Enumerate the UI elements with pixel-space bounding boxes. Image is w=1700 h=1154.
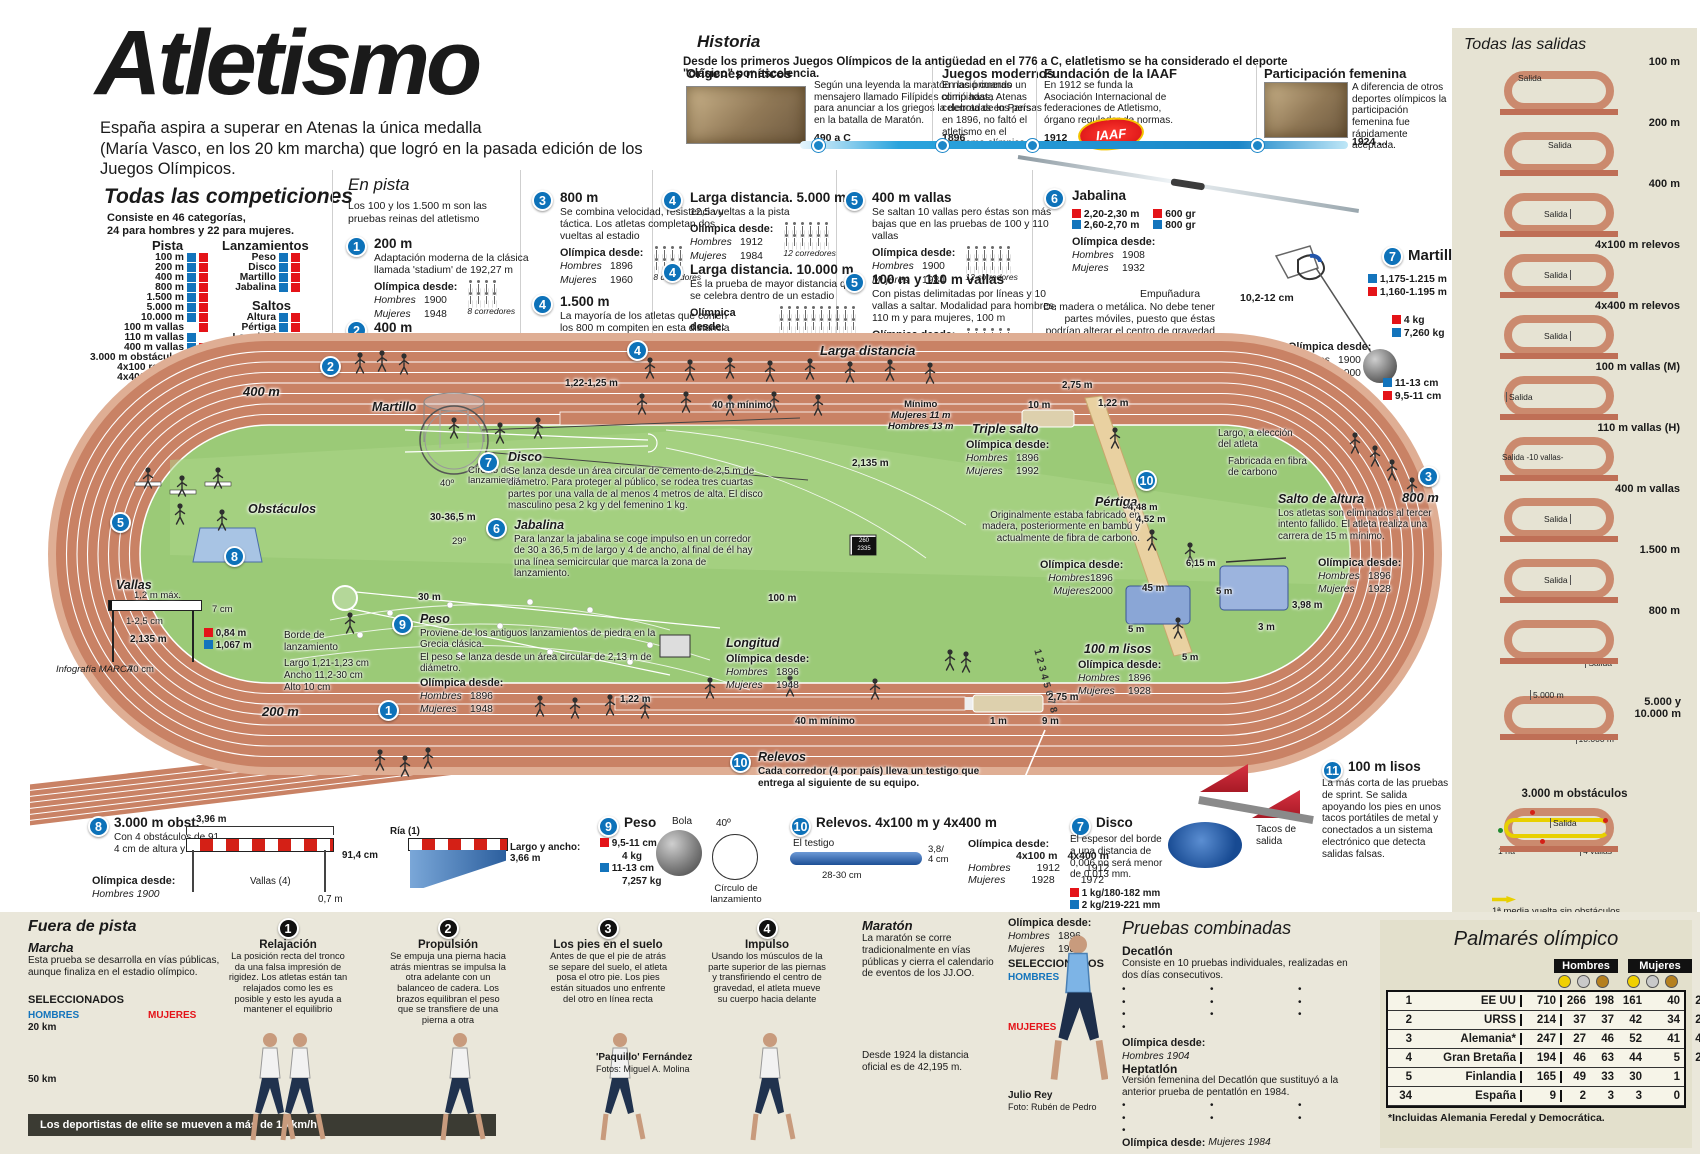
label-1067m: 1,067 m bbox=[204, 640, 252, 651]
timeline-dot bbox=[812, 139, 825, 152]
label-40deg-peso: 40º bbox=[716, 818, 731, 829]
label-5m-b: 5 m bbox=[1128, 624, 1144, 635]
mini-track-icon: Salida bbox=[1504, 376, 1614, 416]
marcha-20km: 20 km bbox=[28, 1022, 56, 1033]
heptatlon-title: Heptatlón bbox=[1122, 1062, 1177, 1076]
salida-text: Salida bbox=[1544, 209, 1571, 219]
event-badge: 5 bbox=[844, 272, 865, 293]
heptatlon-col-3 bbox=[1298, 1100, 1302, 1125]
mini-track-icon: Salida 1 ría 4 vallas bbox=[1504, 808, 1614, 848]
rank-cell: 4 bbox=[1388, 1052, 1416, 1064]
runners-icon: 8 corredores bbox=[467, 280, 515, 321]
label-100m-dist: 100 m bbox=[768, 593, 796, 604]
palmares-row: 3 Alemania* 247 274652 414140 bbox=[1388, 1030, 1684, 1049]
label-30m: 30 m bbox=[418, 592, 441, 603]
water-jump-icon bbox=[410, 850, 506, 888]
competition-item: Disco bbox=[196, 262, 300, 272]
label-1-25cm: 1-2,5 cm bbox=[126, 616, 163, 627]
label-el-testigo: El testigo bbox=[793, 838, 834, 849]
event-badge: 4 bbox=[662, 190, 683, 211]
olimpica-block: Olímpica desde: Hombres1896 Mujeres1928 bbox=[1078, 658, 1161, 699]
badge-4: 4 bbox=[627, 340, 648, 361]
palmares-row: 5 Finlandia 165 493330 120 bbox=[1388, 1068, 1684, 1087]
disco-item-title: Disco bbox=[1096, 815, 1133, 830]
event-desc: 12,5 vueltas a la pista bbox=[690, 207, 852, 219]
label-jabalina: Jabalina bbox=[514, 518, 564, 532]
total-cell: 214 bbox=[1520, 1014, 1562, 1026]
cien-item-text: La más corta de las pruebas de sprint. S… bbox=[1322, 778, 1450, 861]
historia-timeline: Orígenes míticos Según una leyenda la ma… bbox=[686, 66, 1446, 151]
label-800m: 800 m bbox=[1402, 490, 1439, 505]
disco-item-text: El espesor del borde a una distancia de … bbox=[1070, 834, 1166, 881]
pole-carbon-note-1: Largo, a eleccióndel atleta bbox=[1218, 428, 1293, 451]
competition-item: 200 m bbox=[78, 262, 208, 272]
total-cell: 9 bbox=[1520, 1090, 1562, 1102]
silver-medal-icon bbox=[1646, 975, 1659, 988]
baton-icon bbox=[790, 852, 922, 865]
salida-label: 400 m vallas bbox=[1452, 483, 1686, 495]
divider bbox=[1256, 64, 1257, 144]
competiciones-title: Todas las competiciones bbox=[104, 185, 353, 209]
olimpica-block: Olímpica desde: Hombres 1900 bbox=[92, 874, 175, 901]
milestone-2-title: Juegos modernos bbox=[942, 66, 1054, 81]
olimpica-block: Olímpica desde: Hombres1896 Mujeres1992 bbox=[966, 438, 1049, 479]
salida-diagram: 1.500 m Salida bbox=[1452, 544, 1697, 605]
mini-track-icon: Salida bbox=[1504, 620, 1614, 660]
salida-text: Salida bbox=[1544, 270, 1571, 280]
hombres-square-icon bbox=[279, 253, 288, 262]
rank-cell: 3 bbox=[1388, 1033, 1416, 1045]
badge-3: 3 bbox=[1418, 466, 1439, 487]
milestone-1-photo bbox=[686, 86, 806, 144]
palmares-row: 4 Gran Bretaña 194 466344 52016 bbox=[1388, 1049, 1684, 1068]
country-cell: EE UU bbox=[1416, 995, 1520, 1007]
competition-item: Jabalina bbox=[196, 282, 300, 292]
milestone-4-year: 1924 ... bbox=[1352, 136, 1387, 148]
hombres-square-icon bbox=[187, 283, 196, 292]
step-1: 1 Relajación La posición recta del tronc… bbox=[228, 918, 348, 1015]
peso-text-1: Proviene de los antiguos lanzamientos de… bbox=[420, 628, 685, 651]
divider bbox=[1036, 64, 1037, 144]
discus-icon bbox=[1168, 822, 1242, 868]
salida-diagram: 100 m Salida bbox=[1452, 56, 1697, 117]
salida-text: Salida bbox=[1548, 140, 1572, 150]
mujeres-square-icon bbox=[291, 253, 300, 262]
bronze-medal-icon bbox=[1596, 975, 1609, 988]
medal-dots bbox=[1558, 975, 1692, 988]
competition-item: Altura bbox=[196, 312, 300, 322]
event-desc: Es la prueba de mayor distancia que se c… bbox=[690, 279, 858, 303]
jabalina-text: Para lanzar la jabalina se coge impulso … bbox=[514, 534, 764, 579]
salida-diagram: 4x400 m relevos Salida bbox=[1452, 300, 1697, 361]
en-pista-intro: Los 100 y los 1.500 m son las pruebas re… bbox=[348, 200, 498, 225]
shot-circle-icon bbox=[712, 834, 758, 880]
heptatlon-olimpica: Olímpica desde: Mujeres 1984 bbox=[1122, 1136, 1271, 1150]
label-disco: Disco bbox=[508, 450, 542, 464]
hurdle-bar-diagram bbox=[108, 600, 202, 611]
rank-cell: 34 bbox=[1388, 1090, 1416, 1102]
palmares-table: 1 EE UU 710 266198161 402520 2 URSS 214 … bbox=[1386, 990, 1686, 1108]
rank-cell: 5 bbox=[1388, 1071, 1416, 1083]
salida-label: 800 m bbox=[1452, 605, 1686, 617]
label-largo-ancho: Largo y ancho: 3,66 m bbox=[510, 842, 590, 865]
hombres-square-icon bbox=[187, 253, 196, 262]
walkers-photo-figures bbox=[250, 1030, 850, 1150]
competition-item: 800 m bbox=[78, 282, 208, 292]
label-longitud: Longitud bbox=[726, 636, 779, 650]
maraton-title: Maratón bbox=[862, 918, 913, 933]
event-badge: 3 bbox=[532, 190, 553, 211]
infografia-credit: Infografía MARCA bbox=[56, 664, 133, 675]
label-084m: 0,84 m bbox=[204, 628, 246, 639]
relevos-text: Cada corredor (4 por país) lleva un test… bbox=[758, 766, 998, 789]
mujeres-square-icon bbox=[291, 283, 300, 292]
fuera-pista-title: Fuera de pista bbox=[28, 918, 136, 936]
mini-track-icon: Salida bbox=[1504, 132, 1614, 172]
competition-item: 100 m bbox=[78, 252, 208, 262]
silver-medal-icon bbox=[1577, 975, 1590, 988]
label-100m-lisos: 100 m lisos bbox=[1084, 642, 1151, 656]
label-40m-minimo-top: 40 m mínimo bbox=[712, 400, 772, 411]
salida-text: Salida bbox=[1544, 575, 1571, 585]
total-cell: 165 bbox=[1520, 1071, 1562, 1083]
subtitle-line-1: España aspira a superar en Atenas la úni… bbox=[100, 118, 680, 139]
salida-label: 4x400 m relevos bbox=[1452, 300, 1686, 312]
badge-10: 10 bbox=[1136, 470, 1157, 491]
salidas-list: 100 m Salida 200 m Salida 400 m Salida 4… bbox=[1452, 56, 1697, 666]
step-badge: 1 bbox=[278, 918, 299, 939]
pertiga-text: Originalmente estaba fabricado en madera… bbox=[955, 510, 1140, 544]
maraton-text: La maratón se corre tradicionalmente en … bbox=[862, 933, 997, 980]
olimpica-block: Olímpica desde:Hombres1908Mujeres1932 bbox=[1072, 235, 1252, 276]
cien-item-title: 100 m lisos bbox=[1348, 759, 1421, 774]
relevos-item-title: Relevos. 4x100 m y 4x400 m bbox=[816, 815, 997, 830]
mujeres-square-icon bbox=[199, 293, 208, 302]
timeline-bar bbox=[800, 141, 1348, 149]
competiciones-intro-2: 24 para hombres y 22 para mujeres. bbox=[107, 225, 294, 238]
hombres-square-icon bbox=[279, 313, 288, 322]
badge-10-relevos: 10 bbox=[730, 752, 751, 773]
hombres-square-icon bbox=[187, 303, 196, 312]
peso-specs: 9,5-11 cm 4 kg 11-13 cm 7,257 kg bbox=[600, 838, 661, 888]
mini-track-icon: Salida -10 vallas- bbox=[1504, 437, 1614, 477]
page-subtitle: España aspira a superar en Atenas la úni… bbox=[100, 118, 680, 180]
label-914cm: 91,4 cm bbox=[342, 850, 378, 861]
hombres-square-icon bbox=[187, 293, 196, 302]
badge-10-item: 10 bbox=[790, 816, 811, 837]
jabalina-specs: 2,20-2,30 m 2,60-2,70 m 600 gr 800 gr bbox=[1072, 209, 1252, 231]
subtitle-line-2: (María Vasco, en los 20 km marcha) que l… bbox=[100, 139, 680, 180]
step-badge: 3 bbox=[598, 918, 619, 939]
milestone-1-title: Orígenes míticos bbox=[686, 66, 791, 81]
label-40deg: 40º bbox=[440, 478, 454, 489]
step-text: Se empuja una pierna hacia atrás mientra… bbox=[388, 951, 508, 1026]
competition-label: Jabalina bbox=[235, 282, 276, 293]
hurdle-leg bbox=[192, 850, 194, 892]
label-martillo: Martillo bbox=[372, 400, 416, 414]
salida-label: 400 m bbox=[1452, 178, 1686, 190]
event-title: Larga distancia. 5.000 m bbox=[690, 190, 852, 205]
label-07m: 0,7 m bbox=[318, 894, 343, 905]
borde-dimensiones: Largo 1,21-1,23 cmAncho 11,2-30 cmAlto 1… bbox=[284, 658, 369, 693]
event-card-200m: 1 200 m Adaptación moderna de la clásica… bbox=[374, 236, 534, 321]
salidas-panel: Todas las salidas 100 m Salida 200 m Sal… bbox=[1452, 28, 1697, 912]
steeple-hurdle-bar bbox=[186, 838, 334, 852]
salida-label: 110 m vallas (H) bbox=[1452, 422, 1686, 434]
palmares-row: 2 URSS 214 373742 342935 bbox=[1388, 1011, 1684, 1030]
label-10m: 10 m bbox=[1028, 400, 1050, 411]
label-3m: 3 m bbox=[1258, 622, 1275, 633]
milestone-4-title: Participación femenina bbox=[1264, 66, 1406, 81]
palmares-panel: Palmarés olímpico Hombres Mujeres 1 EE U… bbox=[1380, 920, 1692, 1148]
label-5m-c: 5 m bbox=[1182, 652, 1198, 663]
palmares-group-headers: Hombres Mujeres bbox=[1554, 959, 1692, 973]
badge-1: 1 bbox=[378, 700, 399, 721]
step-3: 3 Los pies en el suelo Antes de que el p… bbox=[548, 918, 668, 1004]
altura-text: Los atletas son eliminados al tercer int… bbox=[1278, 508, 1440, 542]
salida-label: 100 m bbox=[1452, 56, 1686, 68]
infographic-atletismo: Atletismo España aspira a superar en Ate… bbox=[0, 0, 1700, 1154]
salida-diagram: 200 m Salida bbox=[1452, 117, 1697, 178]
olimpica-block: Olímpica desde: Hombres1896 Mujeres1928 bbox=[1318, 556, 1401, 597]
event-title: 200 m bbox=[374, 236, 534, 251]
badge-7: 7 bbox=[478, 452, 499, 473]
triple-minimo: Mínimo Mujeres 11 m Hombres 13 m bbox=[888, 400, 953, 433]
mini-track-icon: Salida bbox=[1504, 559, 1614, 599]
decatlon-title: Decatlón bbox=[1122, 944, 1173, 958]
label-30-36m: 30-36,5 m bbox=[430, 512, 476, 523]
mujeres-square-icon bbox=[291, 313, 300, 322]
label-615m: 6,15 m bbox=[1186, 558, 1216, 569]
label-452m: 4,52 m bbox=[1136, 514, 1166, 525]
event-desc: Se saltan 10 vallas pero éstas son más b… bbox=[872, 207, 1068, 243]
step-text: Usando los músculos de la parte superior… bbox=[708, 951, 826, 1004]
marcha-hombres: HOMBRES bbox=[28, 1010, 79, 1021]
timeline-dot bbox=[1026, 139, 1039, 152]
label-122m-pole: 1,22 m bbox=[1098, 398, 1129, 409]
hombres-square-icon bbox=[187, 313, 196, 322]
event-card-jabalina: 6 Jabalina 2,20-2,30 m 2,60-2,70 m 600 g… bbox=[1072, 188, 1252, 276]
competition-item: 10.000 m bbox=[78, 312, 208, 322]
total-cell: 194 bbox=[1520, 1052, 1562, 1064]
competition-item: 5.000 m bbox=[78, 302, 208, 312]
salida-diagram: 400 m Salida bbox=[1452, 178, 1697, 239]
hurdle-leg bbox=[324, 850, 326, 892]
hombres-square-icon bbox=[279, 283, 288, 292]
marcha-text: Esta prueba se desarrolla en vías públic… bbox=[28, 955, 233, 979]
badge-9: 9 bbox=[392, 614, 413, 635]
marathon-runner-photo-figure bbox=[1048, 930, 1108, 1100]
badge-8-item: 8 bbox=[88, 816, 109, 837]
palmares-note: *Incluidas Alemania Feredal y Democrátic… bbox=[1388, 1112, 1692, 1124]
combinadas-title: Pruebas combinadas bbox=[1122, 918, 1291, 939]
peso-item-title: Peso bbox=[624, 815, 656, 830]
runners-icon: 12 corredores bbox=[783, 222, 835, 263]
marcha-title: Marcha bbox=[28, 940, 74, 955]
bracket-396 bbox=[186, 826, 334, 835]
lanzamientos-group-list: PesoDiscoMartilloJabalina bbox=[196, 252, 300, 292]
label-200m: 200 m bbox=[262, 704, 299, 719]
olimpica-block: Olímpica desde: Hombres1896 Mujeres1948 bbox=[726, 652, 809, 693]
rank-cell: 1 bbox=[1388, 995, 1416, 1007]
step-title: Relajación bbox=[228, 939, 348, 951]
event-title: Jabalina bbox=[1072, 188, 1252, 203]
milestone-3-title: Fundación de la IAAF bbox=[1044, 66, 1177, 81]
label-398m: 3,98 m bbox=[1292, 600, 1323, 611]
milestone-4-photo bbox=[1264, 82, 1348, 138]
divider bbox=[932, 64, 933, 144]
salida-label: 1.500 m bbox=[1452, 544, 1686, 556]
label-obstaculos: Obstáculos bbox=[248, 502, 316, 516]
timeline-dot bbox=[936, 139, 949, 152]
salida-diagram: 800 m Salida bbox=[1452, 605, 1697, 666]
decatlon-col-1 bbox=[1122, 984, 1126, 1034]
step-title: Los pies en el suelo bbox=[548, 939, 668, 951]
hombres-square-icon bbox=[187, 263, 196, 272]
competition-item: 400 m bbox=[78, 272, 208, 282]
label-29deg: 29º bbox=[452, 536, 466, 547]
hurdle-leg bbox=[192, 610, 194, 662]
event-badge: 6 bbox=[1044, 188, 1065, 209]
water-jump-dot bbox=[1498, 828, 1503, 833]
country-cell: Finlandia bbox=[1416, 1071, 1520, 1083]
salida-text: Salida bbox=[1544, 514, 1571, 524]
label-400m: 400 m bbox=[243, 384, 280, 399]
hurdle-dot bbox=[1603, 818, 1608, 823]
label-2135m-right: 2,135 m bbox=[852, 458, 889, 469]
gold-medal-icon bbox=[1627, 975, 1640, 988]
badge-6: 6 bbox=[486, 518, 507, 539]
salida-diagram: 110 m vallas (H) Salida -10 vallas- bbox=[1452, 422, 1697, 483]
label-9m: 9 m bbox=[1042, 716, 1059, 727]
label-28-30cm: 28-30 cm bbox=[822, 870, 862, 881]
decatlon-text: Consiste en 10 pruebas individuales, rea… bbox=[1122, 958, 1357, 982]
steps-caption-credit: Fotos: Miguel A. Molina bbox=[596, 1064, 690, 1074]
water-jump-hurdle-bar bbox=[408, 838, 508, 851]
scoreboard: 2602335 bbox=[852, 537, 876, 555]
competition-item: 1.500 m bbox=[78, 292, 208, 302]
label-ria: Ría (1) bbox=[390, 826, 420, 837]
timeline-dot bbox=[1251, 139, 1264, 152]
competition-item: Peso bbox=[196, 252, 300, 262]
badge-8: 8 bbox=[224, 546, 245, 567]
country-cell: Gran Bretaña bbox=[1416, 1052, 1520, 1064]
label-peso: Peso bbox=[420, 612, 450, 626]
event-title: 100 m y 110 m vallas bbox=[872, 272, 1072, 287]
salidas-title: Todas las salidas bbox=[1452, 28, 1697, 56]
heptatlon-text: Versión femenina del Decatlón que sustit… bbox=[1122, 1075, 1362, 1099]
hombres-square-icon bbox=[279, 263, 288, 272]
mujeres-square-icon bbox=[199, 303, 208, 312]
mujeres-square-icon bbox=[291, 273, 300, 282]
salida-text: Salida bbox=[1585, 658, 1612, 668]
steps-caption-name: 'Paquillo' Fernández bbox=[596, 1052, 692, 1063]
label-bola: Bola bbox=[672, 816, 692, 827]
pole-carbon-note-2: Fabricada en fibrade carbono bbox=[1228, 456, 1307, 479]
salida-3000-obstaculos: 3.000 m obstáculos Salida 1 ría 4 vallas bbox=[1452, 788, 1697, 884]
event-badge: 1 bbox=[346, 236, 367, 257]
label-275m-top: 2,75 m bbox=[1062, 380, 1093, 391]
salida-text: Salida bbox=[1518, 73, 1542, 83]
label-2135m-left: 2,135 m bbox=[130, 634, 167, 645]
salida-text: Salida bbox=[1544, 331, 1571, 341]
maraton-photo-name: Julio Rey bbox=[1008, 1090, 1052, 1101]
heptatlon-col-1 bbox=[1122, 1100, 1126, 1138]
label-circulo-peso: Círculo de lanzamiento bbox=[694, 884, 778, 905]
event-badge: 5 bbox=[844, 190, 865, 211]
label-7cm: 7 cm bbox=[212, 604, 233, 615]
mini-track-icon: Salida bbox=[1504, 254, 1614, 294]
marcha-50km: 50 km bbox=[28, 1074, 56, 1085]
salida-text: Salida bbox=[1506, 392, 1533, 402]
total-cell: 247 bbox=[1520, 1033, 1562, 1045]
label-relevos: Relevos bbox=[758, 750, 806, 764]
shot-ball-icon bbox=[656, 830, 702, 876]
maraton-photo-credit: Foto: Rubén de Pedro bbox=[1008, 1102, 1097, 1112]
salida-diagram: 100 m vallas (M) Salida bbox=[1452, 361, 1697, 422]
mini-track-icon: Salida bbox=[1504, 71, 1614, 111]
badge-2: 2 bbox=[320, 356, 341, 377]
competiciones-intro-1: Consiste en 46 categorías, bbox=[107, 212, 294, 225]
martillo-lengths: 1,175-1.215 m 1,160-1.195 m bbox=[1368, 274, 1447, 300]
event-badge: 7 bbox=[1382, 246, 1403, 267]
label-122-125m: 1,22-1,25 m bbox=[565, 378, 618, 389]
label-triple-salto: Triple salto bbox=[972, 422, 1038, 436]
olimpica-block: Olímpica desde: Hombres1896 Mujeres2000 bbox=[1040, 558, 1123, 599]
salida-label: 200 m bbox=[1452, 117, 1686, 129]
label-45m: 45 m bbox=[1142, 583, 1164, 594]
gold-medal-icon bbox=[1558, 975, 1571, 988]
label-12m-max: 1,2 m máx. bbox=[134, 590, 181, 601]
rank-cell: 2 bbox=[1388, 1014, 1416, 1026]
salida-diagram: 4x100 m relevos Salida bbox=[1452, 239, 1697, 300]
competiciones-intro: Consiste en 46 categorías, 24 para hombr… bbox=[107, 212, 294, 238]
mini-track-icon: Salida bbox=[1504, 193, 1614, 233]
palmares-row: 1 EE UU 710 266198161 402520 bbox=[1388, 992, 1684, 1011]
hurdle-dot bbox=[1530, 810, 1535, 815]
step-text: La posición recta del tronco da una fals… bbox=[228, 951, 348, 1015]
label-40m-minimo-bottom: 40 m mínimo bbox=[795, 716, 855, 727]
palmares-title: Palmarés olímpico bbox=[1380, 920, 1692, 951]
hombres-square-icon bbox=[187, 273, 196, 282]
olimpica-block: Olímpica desde:Hombres1912Mujeres1984 bbox=[690, 222, 773, 263]
badge-5: 5 bbox=[110, 512, 131, 533]
heptatlon-col-2 bbox=[1210, 1100, 1214, 1125]
step-badge: 2 bbox=[438, 918, 459, 939]
hurdle-dot bbox=[1540, 839, 1545, 844]
olimpica-block: Olímpica desde:Hombres1896Mujeres1960 bbox=[560, 246, 643, 287]
historia-title: Historia bbox=[697, 32, 760, 52]
olimpica-block: Olímpica desde: Hombres1896 Mujeres1948 bbox=[420, 676, 503, 717]
hurdle-leg bbox=[112, 610, 114, 662]
marcha-mujeres: MUJERES bbox=[148, 1010, 196, 1021]
mujeres-square-icon bbox=[291, 263, 300, 272]
step-2: 2 Propulsión Se empuja una pierna hacia … bbox=[388, 918, 508, 1026]
step-badge: 4 bbox=[757, 918, 778, 939]
step-title: Propulsión bbox=[388, 939, 508, 951]
event-title: 400 m vallas bbox=[872, 190, 1068, 205]
hombres-square-icon bbox=[279, 273, 288, 282]
total-cell: 710 bbox=[1520, 995, 1562, 1007]
event-desc: Adaptación moderna de la clásica llamada… bbox=[374, 253, 534, 277]
salida-text: Salida -10 vallas- bbox=[1502, 453, 1563, 462]
label-275m-bottom: 2,75 m bbox=[1048, 692, 1079, 703]
disco-specs: 1 kg/180-182 mm 2 kg/219-221 mm bbox=[1070, 888, 1160, 912]
page-title: Atletismo bbox=[95, 22, 478, 105]
label-396m: 3,96 m bbox=[196, 814, 227, 825]
empunadura-label: Empuñadura bbox=[1140, 288, 1200, 300]
salida-label: 4x100 m relevos bbox=[1452, 239, 1686, 251]
